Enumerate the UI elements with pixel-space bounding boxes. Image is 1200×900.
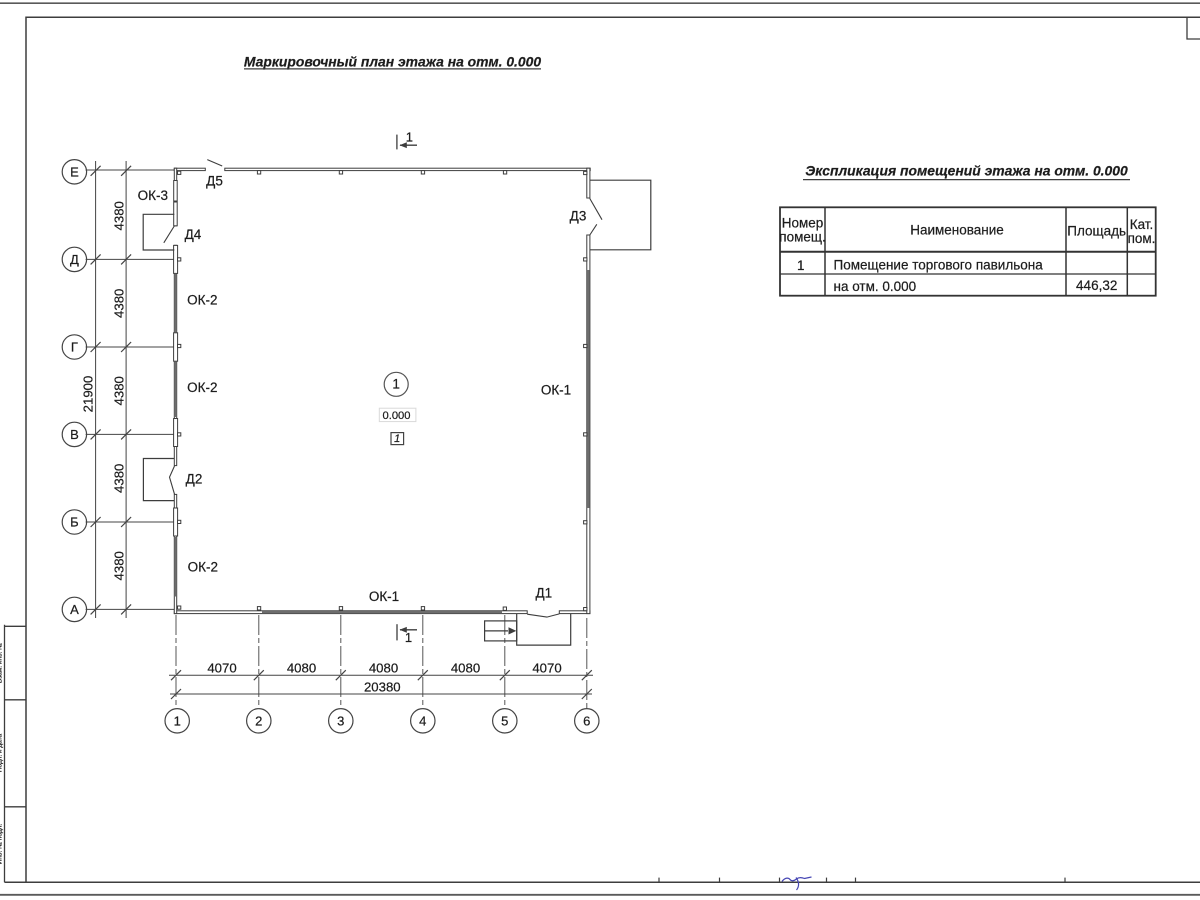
svg-text:Д2: Д2 [186, 471, 203, 486]
svg-text:4380: 4380 [111, 201, 126, 230]
svg-text:ОК-2: ОК-2 [187, 380, 217, 395]
svg-text:на отм. 0.000: на отм. 0.000 [834, 279, 917, 294]
svg-text:Г: Г [71, 340, 78, 355]
svg-text:1: 1 [797, 258, 805, 273]
svg-text:3: 3 [337, 713, 344, 728]
svg-text:помещ.: помещ. [779, 230, 825, 245]
svg-text:1: 1 [394, 433, 400, 445]
svg-text:2: 2 [255, 713, 262, 728]
svg-text:4080: 4080 [369, 661, 398, 676]
svg-text:Наименование: Наименование [910, 223, 1004, 238]
svg-text:Помещение торгового павильона: Помещение торгового павильона [834, 258, 1044, 273]
svg-text:Е: Е [70, 164, 79, 179]
svg-text:21900: 21900 [81, 376, 96, 413]
svg-text:446,32: 446,32 [1076, 278, 1117, 293]
svg-text:Подп. и дата: Подп. и дата [0, 733, 4, 772]
svg-text:1: 1 [174, 713, 181, 728]
svg-text:4080: 4080 [451, 661, 480, 676]
svg-text:0.000: 0.000 [383, 410, 411, 422]
svg-text:4070: 4070 [532, 661, 561, 676]
svg-text:Экспликация помещений этажа на: Экспликация помещений этажа на отм. 0.00… [805, 162, 1128, 178]
svg-text:5: 5 [501, 713, 508, 728]
svg-text:ОК-1: ОК-1 [369, 589, 399, 604]
svg-text:1: 1 [406, 129, 413, 144]
svg-text:6: 6 [583, 713, 590, 728]
svg-text:4380: 4380 [111, 464, 126, 493]
svg-text:Кат.: Кат. [1130, 217, 1154, 232]
svg-text:4380: 4380 [111, 551, 126, 580]
svg-text:пом.: пом. [1128, 231, 1156, 246]
svg-text:ОК-3: ОК-3 [138, 188, 168, 203]
svg-text:Маркировочный план этажа на от: Маркировочный план этажа на отм. 0.000 [244, 53, 541, 69]
svg-text:1: 1 [392, 377, 400, 392]
svg-text:В: В [70, 427, 79, 442]
svg-text:20380: 20380 [364, 679, 401, 694]
svg-text:1: 1 [405, 630, 412, 645]
svg-text:ОК-2: ОК-2 [188, 559, 218, 574]
svg-text:Д5: Д5 [206, 173, 223, 188]
svg-text:ОК-2: ОК-2 [187, 292, 217, 307]
svg-text:Д4: Д4 [185, 227, 202, 242]
svg-text:4380: 4380 [111, 376, 126, 405]
svg-text:Площадь: Площадь [1067, 224, 1126, 239]
svg-text:Д: Д [70, 252, 79, 267]
svg-text:4080: 4080 [287, 661, 316, 676]
svg-text:Номер: Номер [782, 216, 824, 231]
svg-text:Б: Б [70, 515, 79, 530]
svg-text:ОК-1: ОК-1 [541, 383, 571, 398]
svg-text:4380: 4380 [111, 289, 126, 318]
svg-text:Д1: Д1 [535, 585, 552, 600]
svg-text:Взам. инв. №: Взам. инв. № [0, 643, 4, 683]
svg-text:А: А [70, 602, 79, 617]
svg-text:4: 4 [419, 713, 426, 728]
svg-text:Инв. № подл.: Инв. № подл. [0, 824, 4, 865]
svg-text:4070: 4070 [207, 661, 236, 676]
svg-text:Д3: Д3 [570, 208, 587, 223]
